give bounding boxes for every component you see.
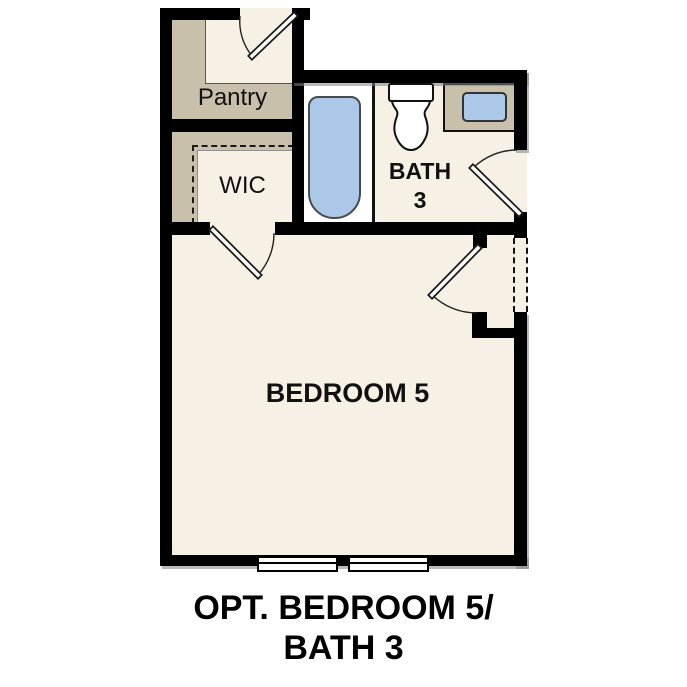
floorplan: Pantry WIC BATH 3 BEDROOM 5 OPT. BEDROOM… [0,0,687,687]
wall-bottom [160,555,527,566]
window-pane-line [350,558,427,564]
bath-door-threshold [514,150,527,212]
pantry-door-threshold [240,8,294,20]
wall-pantry-wic-divider [160,119,297,132]
wall-right-lower [514,312,527,566]
wall-left [160,8,172,566]
wall-bedroom-top-left [160,222,210,235]
plan-caption-line1: OPT. BEDROOM 5/ [0,588,687,628]
bathtub [308,96,361,219]
wall-alcove-connector [487,328,514,338]
bedroom-door-jamb-bottom [472,312,487,338]
pantry-label: Pantry [180,84,285,112]
window [348,556,429,572]
wall-top-left-segment [160,8,240,20]
bedroom-door-jamb-top [473,235,487,248]
window-pane-line [259,558,336,564]
plan-caption-line2: BATH 3 [0,628,687,668]
bedroom-label: BEDROOM 5 [210,378,485,409]
bath-label-line2: 3 [375,186,465,215]
wall-right-upper [514,70,527,150]
window [257,556,338,572]
plan-caption: OPT. BEDROOM 5/ BATH 3 [0,588,687,668]
wall-bedroom-top-right [275,222,527,235]
wic-door-threshold [210,222,275,235]
sink [462,92,507,122]
pantry-door-swing-area [205,20,293,84]
wall-right-optional-dashed-opening [513,238,528,312]
wall-bath-top [292,70,527,83]
bath-label-line1: BATH [375,157,465,186]
wic-label: WIC [195,172,290,200]
bath-label: BATH 3 [375,157,465,215]
